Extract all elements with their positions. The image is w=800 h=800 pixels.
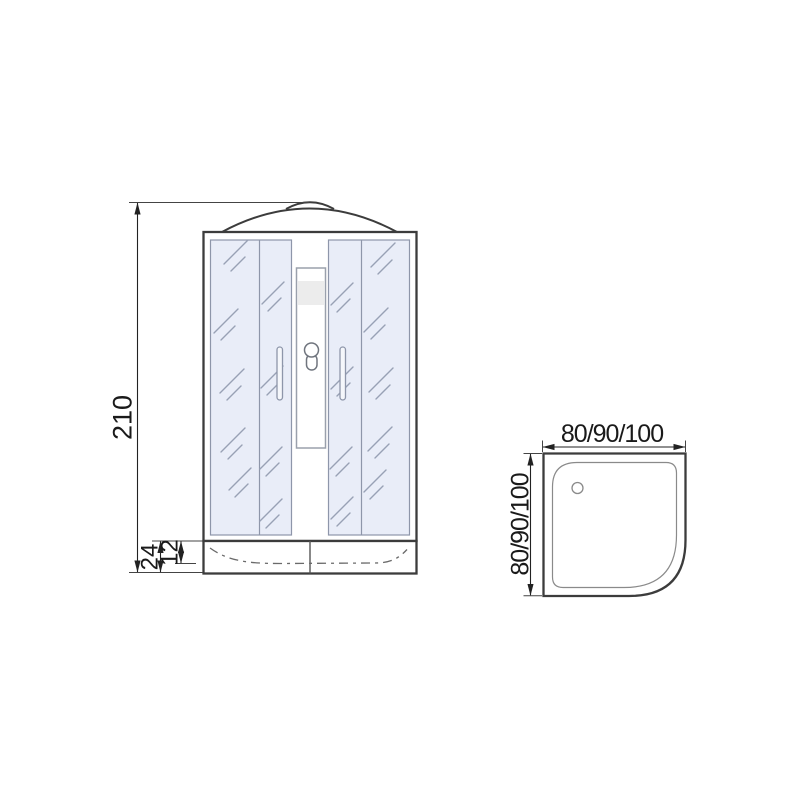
tray-inner-dimension-label: 12	[157, 539, 184, 566]
drain	[572, 483, 583, 494]
front-view: 210 24 12	[108, 202, 417, 573]
shower-column	[297, 268, 326, 448]
door-handle-right	[340, 347, 346, 400]
shower-column-band	[298, 281, 324, 305]
door-handle-left	[277, 347, 283, 400]
shower-tray-front	[204, 541, 417, 574]
dimension-tray-height: 24 12	[137, 539, 204, 572]
technical-drawing: 210 24 12 80/90/100 80/90/100	[0, 0, 800, 800]
cabin-dome-outer	[222, 209, 397, 233]
mixer-dial	[305, 343, 319, 357]
dimension-width: 80/90/100	[543, 420, 686, 452]
height-dimension-label: 210	[108, 395, 138, 440]
width-dimension-label: 80/90/100	[561, 420, 663, 448]
tray-top-outline	[544, 454, 686, 597]
dimension-depth: 80/90/100	[507, 454, 543, 596]
technical-drawing-page: 210 24 12 80/90/100 80/90/100	[0, 0, 800, 800]
depth-dimension-label: 80/90/100	[507, 473, 535, 575]
top-view: 80/90/100 80/90/100	[507, 420, 686, 596]
